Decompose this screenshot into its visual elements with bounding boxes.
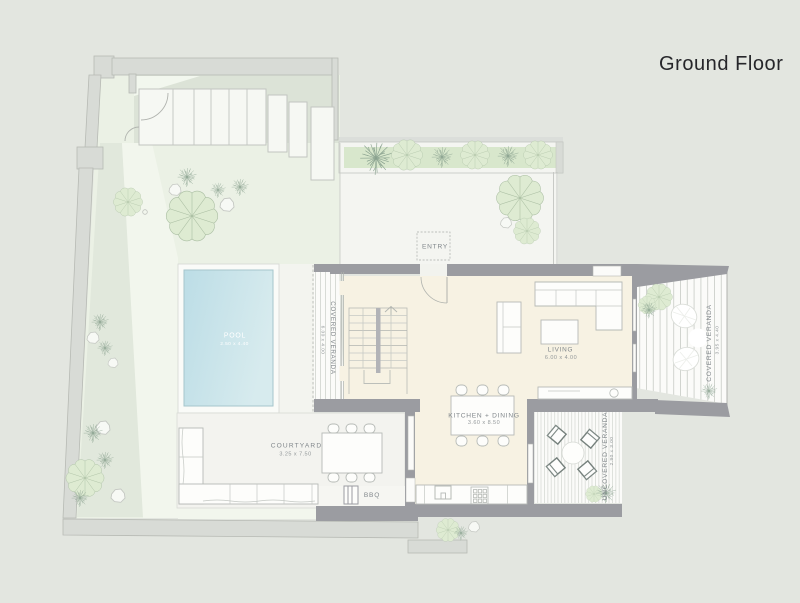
svg-text:6.00 x 4.00: 6.00 x 4.00	[545, 355, 577, 361]
svg-text:COVERED VERANDA: COVERED VERANDA	[706, 304, 713, 382]
svg-text:3.60 x 8.50: 3.60 x 8.50	[468, 420, 500, 426]
svg-text:COURTYARD: COURTYARD	[271, 443, 323, 450]
svg-text:COVERED VERANDA: COVERED VERANDA	[329, 301, 336, 375]
svg-text:KITCHEN + DINING: KITCHEN + DINING	[448, 413, 520, 420]
svg-text:LIVING: LIVING	[548, 347, 573, 354]
svg-text:2.90 x 3.00: 2.90 x 3.00	[609, 437, 615, 466]
svg-text:6.00 x 4.00: 6.00 x 4.00	[320, 326, 326, 355]
svg-text:ENTRY: ENTRY	[422, 244, 448, 251]
svg-text:Ground Floor: Ground Floor	[659, 53, 783, 75]
svg-text:3.25 x 7.50: 3.25 x 7.50	[279, 452, 311, 458]
svg-text:UNCOVERED VERANDA: UNCOVERED VERANDA	[602, 412, 609, 501]
svg-text:POOL: POOL	[224, 333, 246, 340]
svg-text:BBQ: BBQ	[364, 492, 380, 499]
svg-text:2.50 x 4.40: 2.50 x 4.40	[220, 341, 249, 347]
svg-text:3.95 x 4.40: 3.95 x 4.40	[715, 326, 721, 355]
